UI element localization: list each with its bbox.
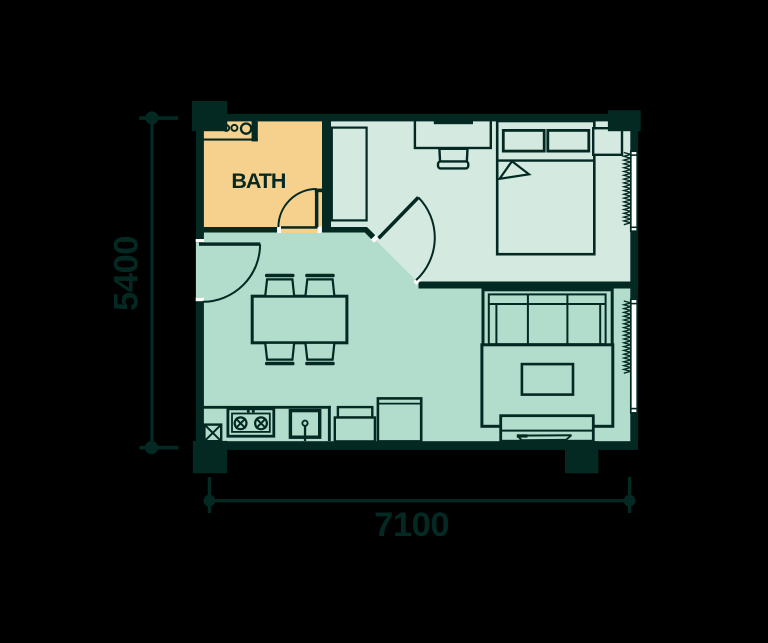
svg-text:5400: 5400 [108, 236, 146, 311]
svg-text:7100: 7100 [374, 506, 449, 544]
svg-text:BATH: BATH [231, 169, 286, 193]
